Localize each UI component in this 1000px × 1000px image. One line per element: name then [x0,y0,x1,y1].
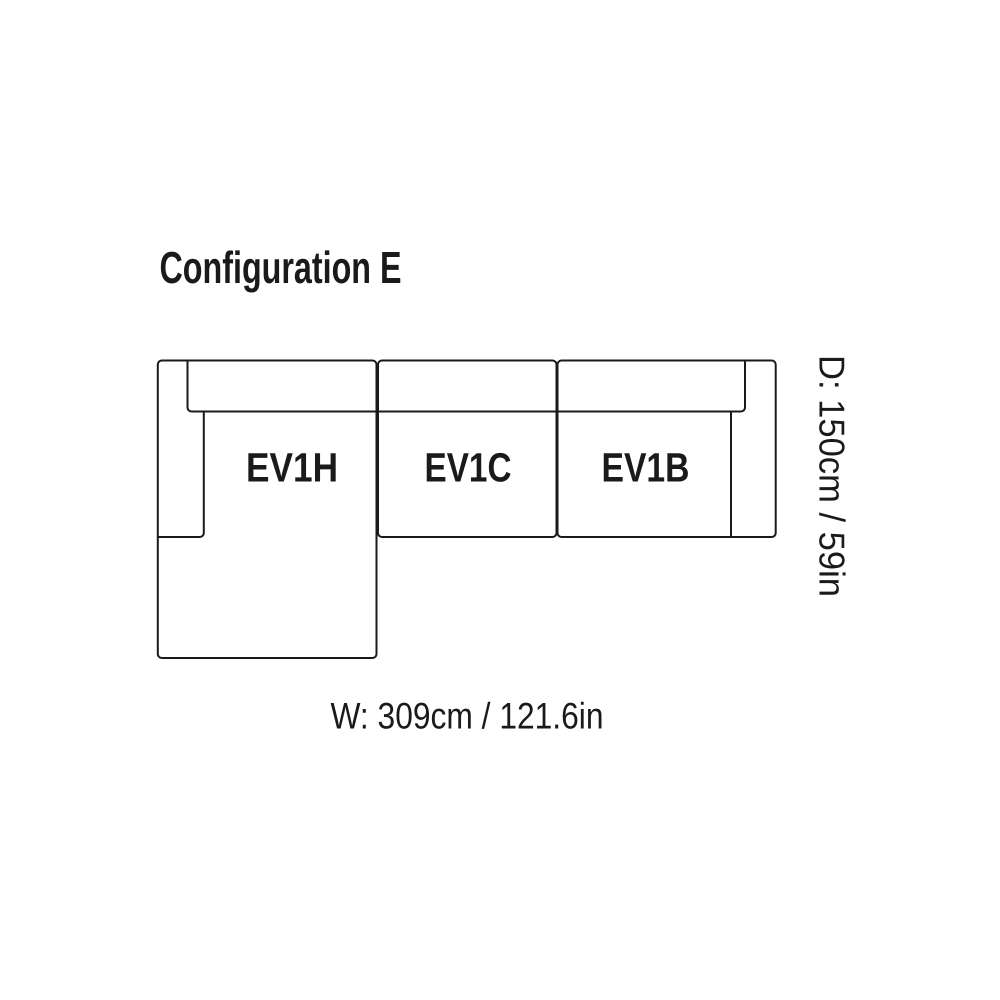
svg-text:EV1B: EV1B [602,444,690,490]
svg-text:EV1C: EV1C [425,444,512,490]
svg-text:D: 150cm / 59in: D: 150cm / 59in [812,355,853,597]
svg-text:W: 309cm / 121.6in: W: 309cm / 121.6in [331,696,604,737]
svg-text:EV1H: EV1H [246,444,338,490]
svg-text:Configuration E: Configuration E [160,242,402,293]
